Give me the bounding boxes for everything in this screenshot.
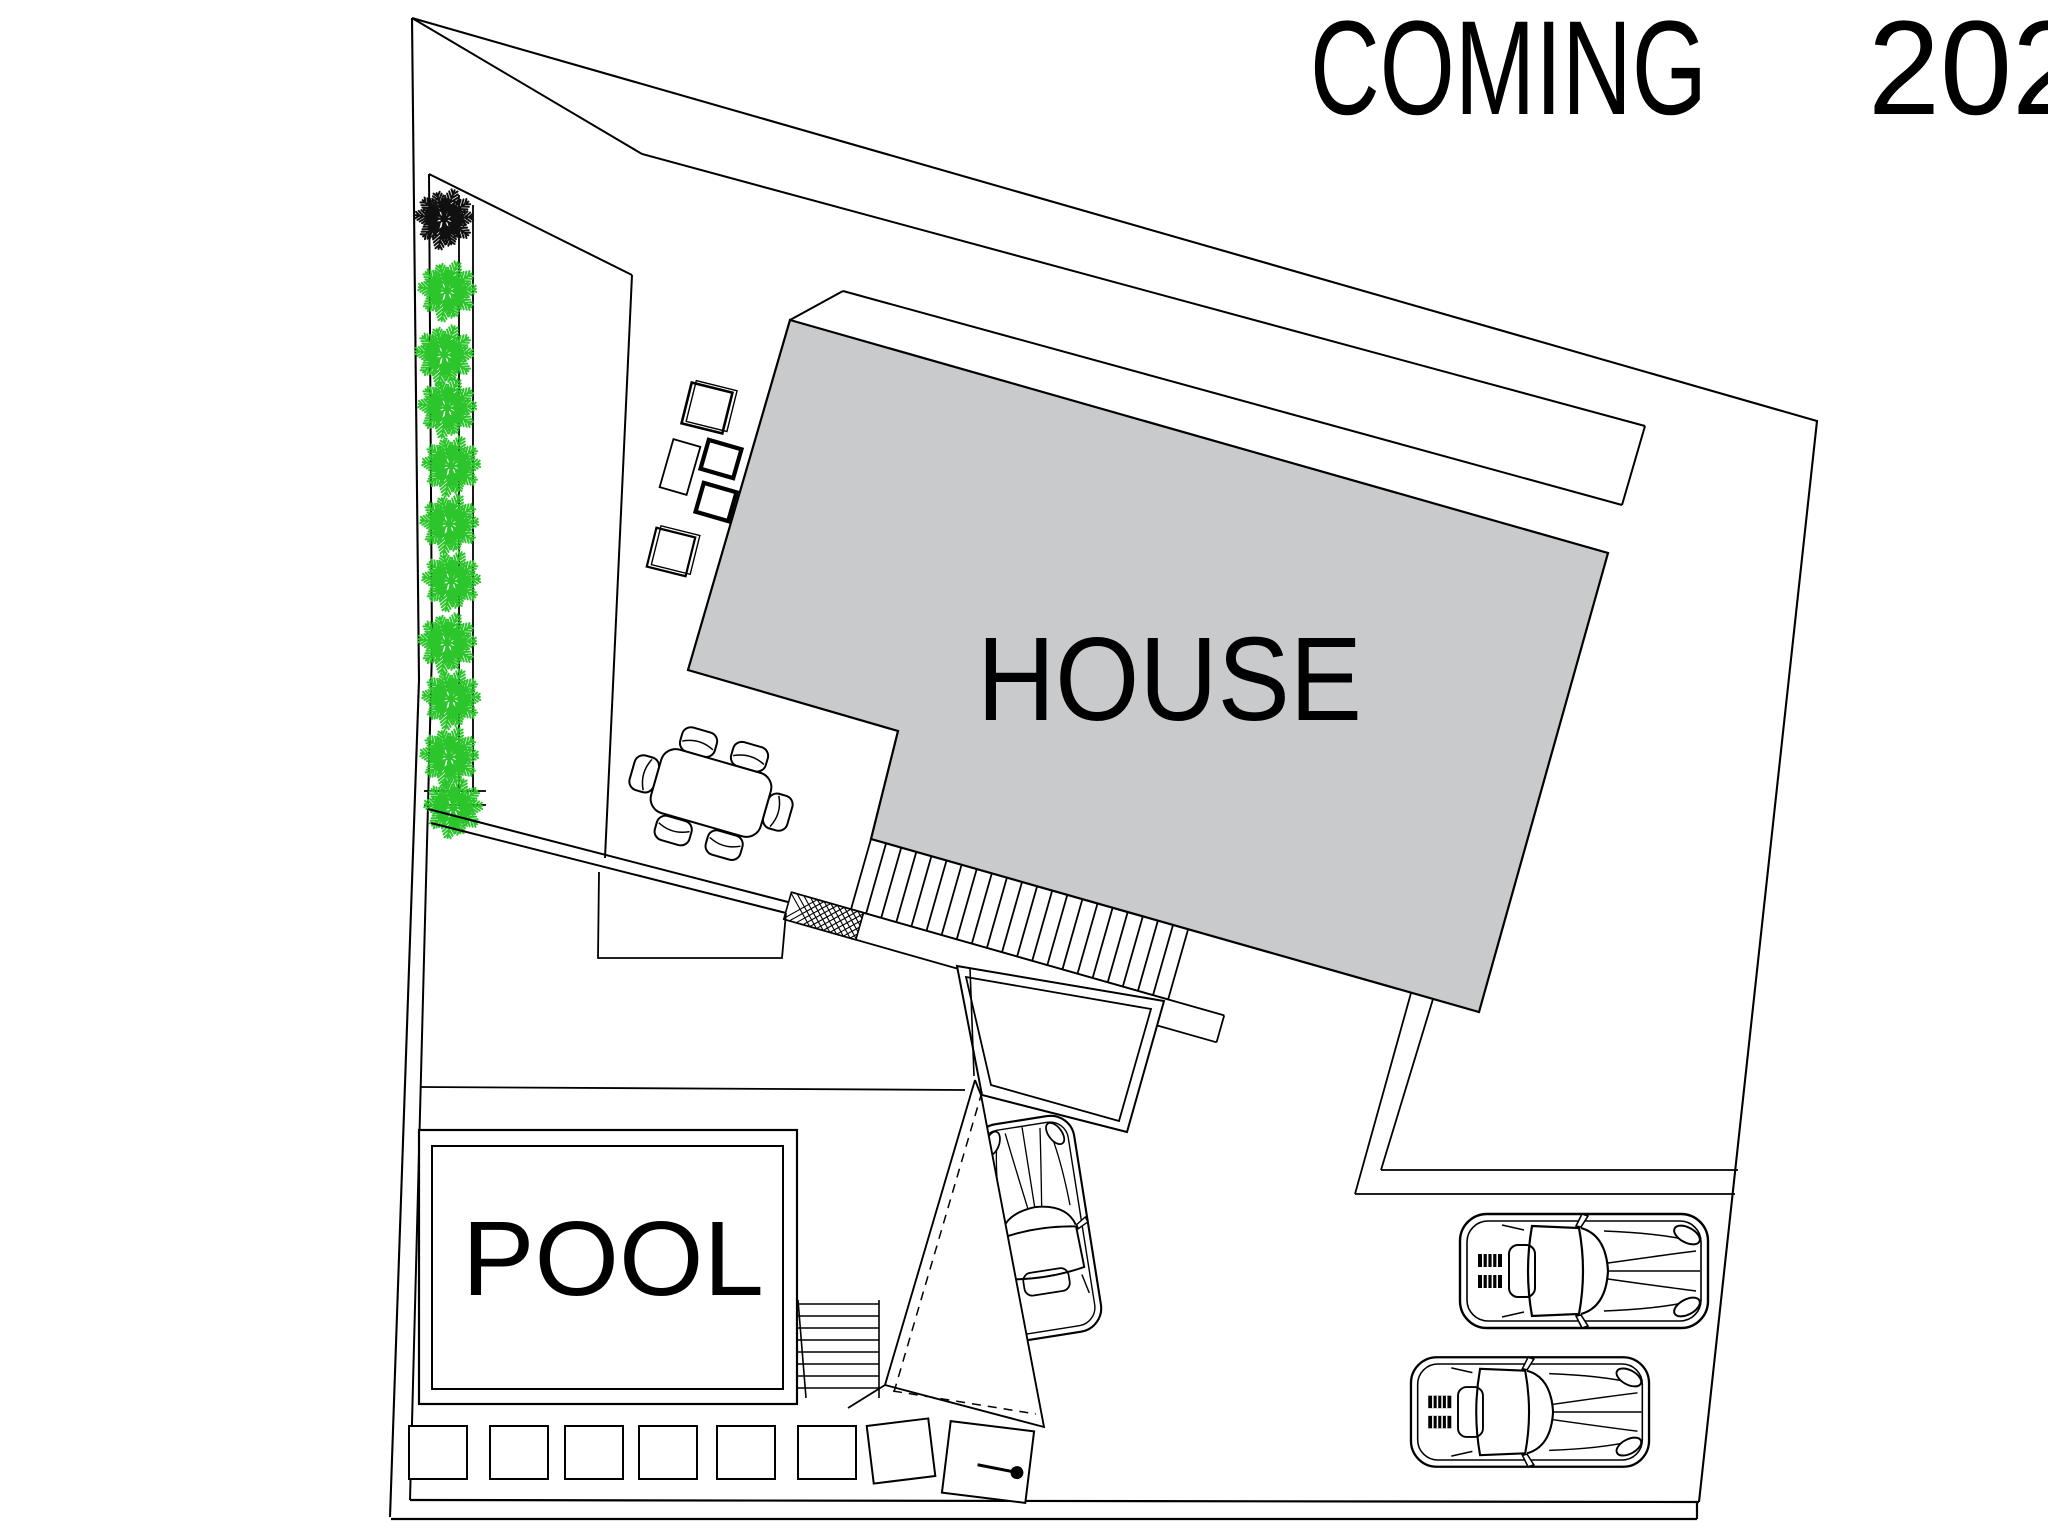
svg-text:202: 202 [1868,0,2048,143]
svg-text:HOUSE: HOUSE [977,613,1362,746]
svg-text:POOL: POOL [462,1200,764,1318]
svg-text:COMING: COMING [1310,0,1707,143]
